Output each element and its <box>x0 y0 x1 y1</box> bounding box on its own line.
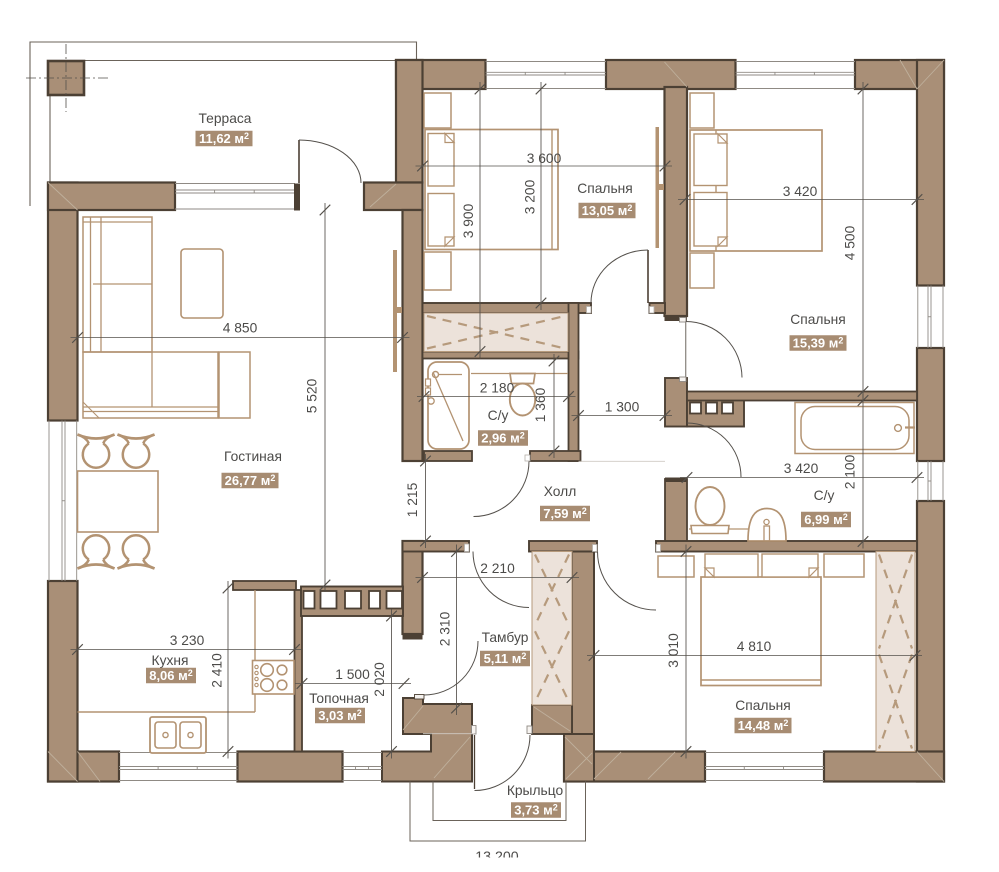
svg-text:3,03 м2: 3,03 м2 <box>318 708 362 723</box>
svg-text:4 850: 4 850 <box>223 321 258 336</box>
svg-text:Топочная: Топочная <box>309 691 369 706</box>
svg-text:7,59 м2: 7,59 м2 <box>543 506 587 521</box>
svg-text:3 420: 3 420 <box>783 184 818 199</box>
svg-text:Спальня: Спальня <box>577 181 632 196</box>
svg-text:4 500: 4 500 <box>843 225 858 260</box>
svg-text:13,05 м2: 13,05 м2 <box>582 203 633 218</box>
svg-text:С/у: С/у <box>488 408 509 423</box>
svg-text:3 010: 3 010 <box>666 633 681 668</box>
svg-text:3 230: 3 230 <box>170 633 205 648</box>
svg-text:1 300: 1 300 <box>605 400 640 415</box>
svg-text:2 100: 2 100 <box>843 454 858 489</box>
svg-text:2 310: 2 310 <box>438 611 453 646</box>
svg-text:15,39 м2: 15,39 м2 <box>793 336 844 351</box>
svg-text:6,99 м2: 6,99 м2 <box>804 512 848 527</box>
svg-text:2 410: 2 410 <box>210 653 225 688</box>
svg-text:Холл: Холл <box>544 484 577 499</box>
svg-text:26,77 м2: 26,77 м2 <box>225 473 276 488</box>
svg-text:5,11 м2: 5,11 м2 <box>484 651 527 666</box>
svg-text:Спальня: Спальня <box>735 698 790 713</box>
svg-text:Кухня: Кухня <box>152 653 189 668</box>
svg-text:Гостиная: Гостиная <box>224 449 282 464</box>
svg-text:1 500: 1 500 <box>335 667 370 682</box>
svg-text:8,06 м2: 8,06 м2 <box>149 668 193 683</box>
svg-text:5 520: 5 520 <box>305 378 320 413</box>
svg-text:Спальня: Спальня <box>790 312 845 327</box>
svg-text:14,48 м2: 14,48 м2 <box>738 718 789 733</box>
svg-text:4 810: 4 810 <box>737 639 772 654</box>
svg-text:1 360: 1 360 <box>533 387 548 422</box>
svg-text:Тамбур: Тамбур <box>482 630 529 645</box>
svg-text:2 210: 2 210 <box>480 561 515 576</box>
svg-text:3 420: 3 420 <box>784 461 819 476</box>
svg-text:3 600: 3 600 <box>527 151 562 166</box>
svg-text:3,73 м2: 3,73 м2 <box>514 803 558 818</box>
svg-text:2 180: 2 180 <box>480 381 515 396</box>
svg-text:2 020: 2 020 <box>372 662 387 697</box>
svg-text:2,96 м2: 2,96 м2 <box>481 431 525 446</box>
svg-text:С/у: С/у <box>814 488 835 503</box>
svg-text:3 900: 3 900 <box>461 203 476 238</box>
svg-text:11,62 м2: 11,62 м2 <box>199 131 249 146</box>
svg-text:3 200: 3 200 <box>523 179 538 214</box>
svg-text:1 215: 1 215 <box>405 482 420 517</box>
svg-text:Терраса: Терраса <box>199 111 252 126</box>
svg-text:Крыльцо: Крыльцо <box>507 783 564 798</box>
